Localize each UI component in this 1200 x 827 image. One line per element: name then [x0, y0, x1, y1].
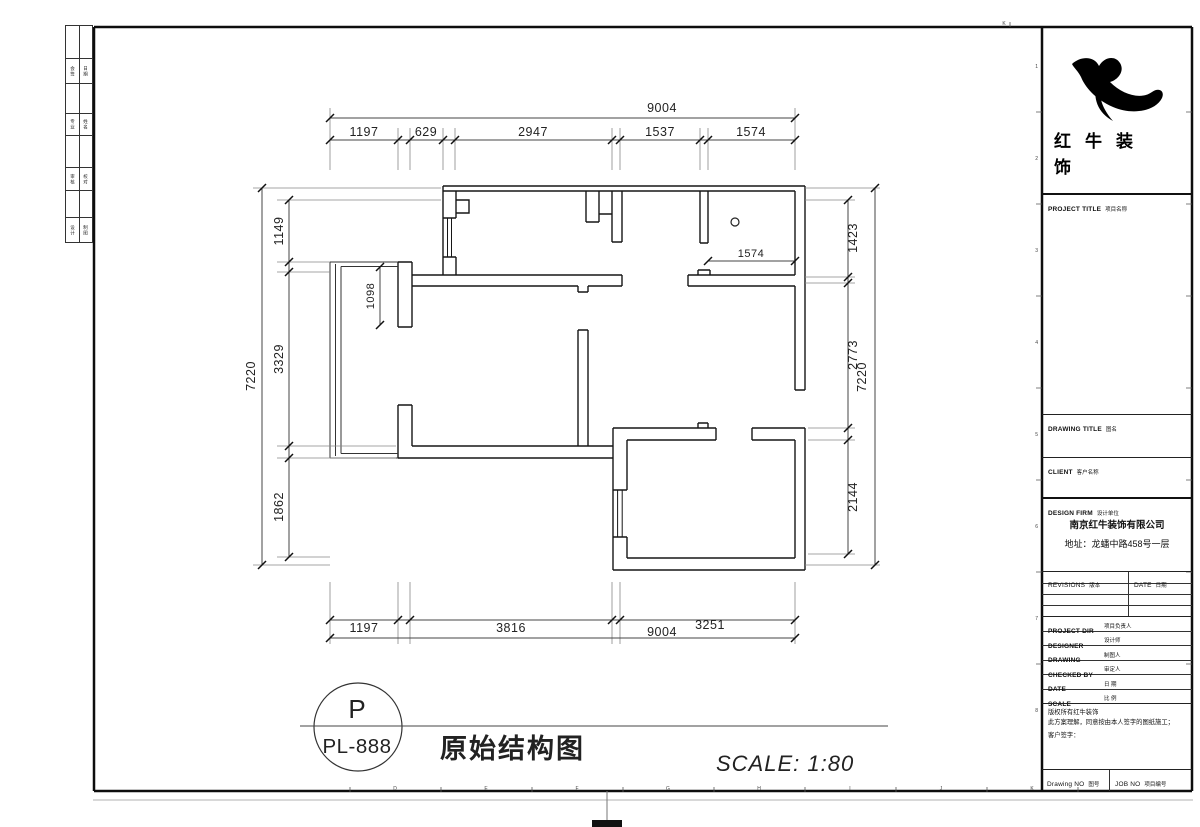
stamp-code: PL-888	[322, 735, 391, 758]
drawing-row: DRAWING制图人	[1042, 646, 1192, 661]
dim-bottom-seg: 3816	[496, 621, 526, 635]
drawing-label-cn: 制图人	[1104, 651, 1121, 659]
fold-strip-label: 姓名	[79, 114, 92, 135]
fold-strip-label: 审核	[66, 168, 79, 190]
designer-label-cn: 设计师	[1104, 636, 1121, 644]
sheet-border	[93, 27, 1193, 827]
revisions-empty-row	[1042, 595, 1192, 606]
dimension-lines	[262, 118, 875, 638]
dimension-ticks	[258, 114, 879, 642]
dim-bottom-seg: 1197	[350, 621, 379, 635]
ruler-letter: I	[849, 786, 850, 792]
fold-strip-spacer	[66, 26, 92, 59]
scale-label-cn: 比 例	[1104, 694, 1117, 702]
dim-left-seg: 1149	[272, 217, 286, 246]
drawing-stamp: P PL-888 原始结构图 SCALE: 1:80	[300, 683, 888, 776]
fold-number: 1	[1035, 64, 1038, 70]
fold-number: 4	[1035, 340, 1038, 346]
fold-strip-row: 设计 制图	[66, 218, 92, 242]
checked-by-label-cn: 审定人	[1104, 665, 1121, 673]
dim-top-seg: 2947	[518, 125, 548, 139]
title-block: 红牛装 饰 PROJECT TITLE项目名称 DRAWING TITLE图名 …	[1042, 27, 1192, 791]
dim-top-overall: 9004	[647, 101, 677, 115]
fold-strip-label: 设计	[66, 218, 79, 242]
fold-strip-row: 会签 日期	[66, 59, 92, 84]
ruler-letter: G	[666, 786, 670, 792]
drawing-no-cell: Drawing NO图号	[1042, 770, 1110, 791]
project-dir-label-cn: 项目负责人	[1104, 622, 1132, 630]
brand-line2: 饰	[1054, 158, 1085, 177]
fold-strip-label: 校对	[79, 168, 92, 190]
fold-number: 8	[1035, 708, 1038, 714]
fold-strip-label: 专业	[66, 114, 79, 135]
client-section: CLIENT客户名称	[1042, 457, 1192, 497]
dim-inner-horizontal: 1574	[738, 248, 764, 260]
copyright-note: 版权所有红牛装饰 此方案理解，同意按由本人签字的图纸施工； 客户签字：	[1042, 703, 1192, 769]
drawing-no-label: Drawing NO	[1047, 781, 1084, 788]
designer-row: DESIGNER设计师	[1042, 632, 1192, 647]
dim-inner-vertical: 1098	[365, 283, 377, 309]
drawing-no-label-cn: 图号	[1088, 782, 1099, 788]
copyright-line1: 版权所有红牛装饰	[1048, 708, 1192, 718]
design-firm-section: DESIGN FIRM设计单位 南京红牛装饰有限公司 地址：龙蟠中路458号一层	[1042, 497, 1192, 571]
stamp-drawing-title: 原始结构图	[440, 733, 585, 764]
floor-plan-walls	[398, 186, 805, 570]
dim-right-seg: 1423	[846, 223, 860, 253]
drawing-title-section: DRAWING TITLE图名	[1042, 414, 1192, 457]
copyright-line2: 此方案理解，同意按由本人签字的图纸施工；	[1048, 718, 1192, 728]
dim-top-seg: 1574	[736, 125, 766, 139]
date-row: DATE日 期	[1042, 675, 1192, 690]
dim-top-seg: 1537	[645, 125, 675, 139]
scale-row: SCALE比 例	[1042, 690, 1192, 705]
dim-left-seg: 3329	[272, 344, 286, 374]
fold-number: 6	[1035, 524, 1038, 530]
ruler-letter: H	[757, 786, 761, 792]
revisions-empty-row	[1042, 584, 1192, 595]
fold-strip-label: 日期	[79, 59, 92, 83]
door-marker-circle	[731, 218, 739, 226]
project-dir-row: PROJECT DIR项目负责人	[1042, 617, 1192, 632]
job-no-cell: JOB NO项目编号	[1110, 770, 1192, 791]
dim-top-seg: 1197	[350, 125, 379, 139]
ruler-letter: D	[393, 786, 397, 792]
company-name: 南京红牛装饰有限公司	[1042, 517, 1192, 531]
dim-left-overall: 7220	[244, 361, 258, 391]
fold-strip-row: 审核 校对	[66, 168, 92, 191]
checked-by-row: CHECKED BY审定人	[1042, 661, 1192, 676]
client-label-cn: 客户名称	[1077, 470, 1099, 476]
fold-strip-spacer	[66, 191, 92, 218]
title-block-logo-area: 红牛装 饰	[1042, 27, 1192, 193]
fold-number: 2	[1035, 156, 1038, 162]
fold-number: 3	[1035, 248, 1038, 254]
dim-right-seg: 2144	[846, 482, 860, 512]
company-address: 地址：龙蟠中路458号一层	[1042, 537, 1192, 550]
fold-strip: 会签 日期 专业 姓名 审核 校对 设计 制图	[65, 25, 93, 243]
client-label: CLIENT	[1048, 469, 1073, 476]
fold-strip-row: 专业 姓名	[66, 114, 92, 136]
dim-top-seg: 629	[415, 125, 437, 139]
fold-strip-spacer	[66, 84, 92, 114]
fold-strip-label: 制图	[79, 218, 92, 242]
drawing-title-label-cn: 图名	[1106, 427, 1117, 433]
dim-bottom-seg: 3251	[695, 618, 725, 632]
drawing-sheet: D E F G H I J K K 1 2 3 4 5 6 7 8	[0, 0, 1200, 827]
extension-lines	[253, 108, 880, 644]
revisions-header-row: REVISIONS版本 DATE日期	[1042, 572, 1192, 584]
brand-line1: 红牛装	[1054, 132, 1147, 151]
number-row: Drawing NO图号 JOB NO项目编号	[1042, 769, 1192, 791]
fold-number: 5	[1035, 432, 1038, 438]
revisions-table: REVISIONS版本 DATE日期	[1042, 571, 1192, 616]
drawing-title-label: DRAWING TITLE	[1048, 426, 1102, 433]
floor-plan-canvas: D E F G H I J K K 1 2 3 4 5 6 7 8	[0, 0, 1200, 827]
fold-strip-spacer	[66, 136, 92, 168]
stamp-scale: SCALE: 1:80	[716, 751, 854, 776]
fold-number: 7	[1035, 616, 1038, 622]
design-firm-label: DESIGN FIRM	[1048, 510, 1093, 517]
ruler-letter: F	[575, 786, 578, 792]
date-label-cn: 日 期	[1104, 680, 1117, 688]
job-no-label-cn: 项目编号	[1144, 782, 1166, 788]
job-no-label: JOB NO	[1115, 781, 1140, 788]
bay-window	[330, 262, 398, 458]
project-title-label: PROJECT TITLE	[1048, 206, 1101, 213]
project-title-label-cn: 项目名称	[1105, 207, 1127, 213]
signature-rows: PROJECT DIR项目负责人 DESIGNER设计师 DRAWING制图人 …	[1042, 616, 1192, 703]
fold-strip-label: 会签	[66, 59, 79, 83]
dim-left-seg: 1862	[272, 492, 286, 522]
project-title-section: PROJECT TITLE项目名称	[1042, 193, 1192, 414]
dim-bottom-overall: 9004	[647, 625, 677, 639]
brand-name: 红牛装 饰	[1054, 129, 1184, 181]
stamp-tag: P	[348, 694, 365, 724]
client-signature-label: 客户签字：	[1048, 731, 1192, 741]
dim-right-overall: 7220	[855, 362, 869, 392]
